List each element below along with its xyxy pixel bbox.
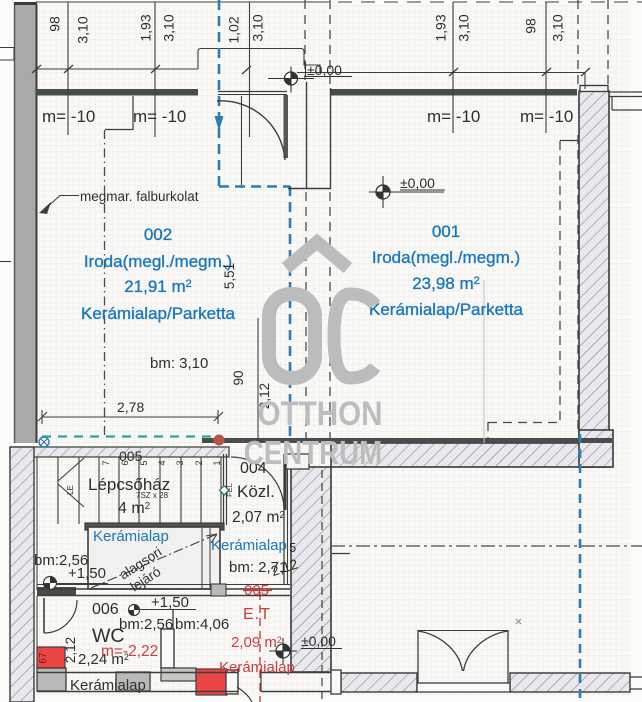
svg-text:67: 67 [38,652,49,664]
svg-text:megmar. falburkolat: megmar. falburkolat [80,189,199,204]
svg-text:6: 6 [120,460,130,465]
svg-text:Kerámialap/Parketta: Kerámialap/Parketta [369,300,524,319]
svg-text:3,10: 3,10 [250,14,266,41]
svg-text:2: 2 [194,460,204,465]
svg-text:3,10: 3,10 [75,16,91,43]
svg-text:5,51: 5,51 [222,263,237,289]
svg-text:7SZ x 28: 7SZ x 28 [136,491,169,500]
svg-text:21,91 m2: 21,91 m2 [124,277,192,296]
svg-text:23,98 m2: 23,98 m2 [412,274,480,293]
svg-text:Kerámialap: Kerámialap [219,659,295,676]
svg-text:+1,50: +1,50 [151,594,189,611]
svg-text:006: 006 [92,601,119,618]
svg-text:3,10: 3,10 [456,14,472,41]
svg-text:Kerámialap: Kerámialap [93,528,169,545]
svg-text:±0,00: ±0,00 [307,62,342,78]
svg-text:+1,50: +1,50 [68,565,106,582]
svg-text:bm:2,56: bm:2,56 [119,616,173,633]
svg-text:Iroda(megl./megm.): Iroda(megl./megm.) [372,248,520,267]
svg-text:Kerámialap: Kerámialap [211,537,287,554]
svg-text:Iroda(megl./megm.): Iroda(megl./megm.) [84,252,232,271]
svg-text:2,09 m2: 2,09 m2 [231,634,282,651]
svg-text:1,93: 1,93 [138,14,154,41]
svg-text:CENTRUM: CENTRUM [244,435,383,472]
svg-text:90: 90 [231,370,246,385]
svg-text:Közl.: Közl. [237,482,275,501]
svg-text:m=-2,22: m=-2,22 [101,643,158,660]
svg-text:bm:4,06: bm:4,06 [175,616,229,633]
svg-text:98: 98 [523,18,539,34]
svg-text:Kerámialap/Parketta: Kerámialap/Parketta [81,304,236,323]
svg-text:±0,00: ±0,00 [301,633,336,649]
svg-text:m= -10: m= -10 [42,107,95,126]
svg-text:2,07 m2: 2,07 m2 [232,509,285,526]
svg-text:OTTHON: OTTHON [258,394,383,432]
svg-text:m= -10: m= -10 [133,107,186,126]
svg-text:1,02: 1,02 [226,16,242,43]
svg-text:002: 002 [144,225,172,244]
svg-text:2,12: 2,12 [63,637,78,663]
svg-text:bm: 3,10: bm: 3,10 [150,355,208,372]
svg-text:2,78: 2,78 [117,399,144,415]
svg-text:1: 1 [212,460,222,465]
svg-text:4: 4 [157,460,167,465]
svg-text:m= -10: m= -10 [520,107,573,126]
svg-text:±0,00: ±0,00 [400,175,435,191]
svg-text:1,93: 1,93 [433,14,449,41]
svg-text:7: 7 [101,460,111,465]
svg-text:3,10: 3,10 [161,14,177,41]
svg-text:98: 98 [47,16,63,32]
svg-text:5: 5 [139,460,149,465]
svg-text:LE: LE [66,485,75,495]
svg-text:E.T: E.T [243,606,271,623]
svg-text:3: 3 [175,460,185,465]
svg-text:Kerámialap: Kerámialap [70,677,146,694]
svg-text:5: 5 [289,540,296,555]
svg-text:m= -10: m= -10 [427,107,480,126]
svg-text:001: 001 [432,222,460,241]
svg-text:3,10: 3,10 [550,14,566,41]
